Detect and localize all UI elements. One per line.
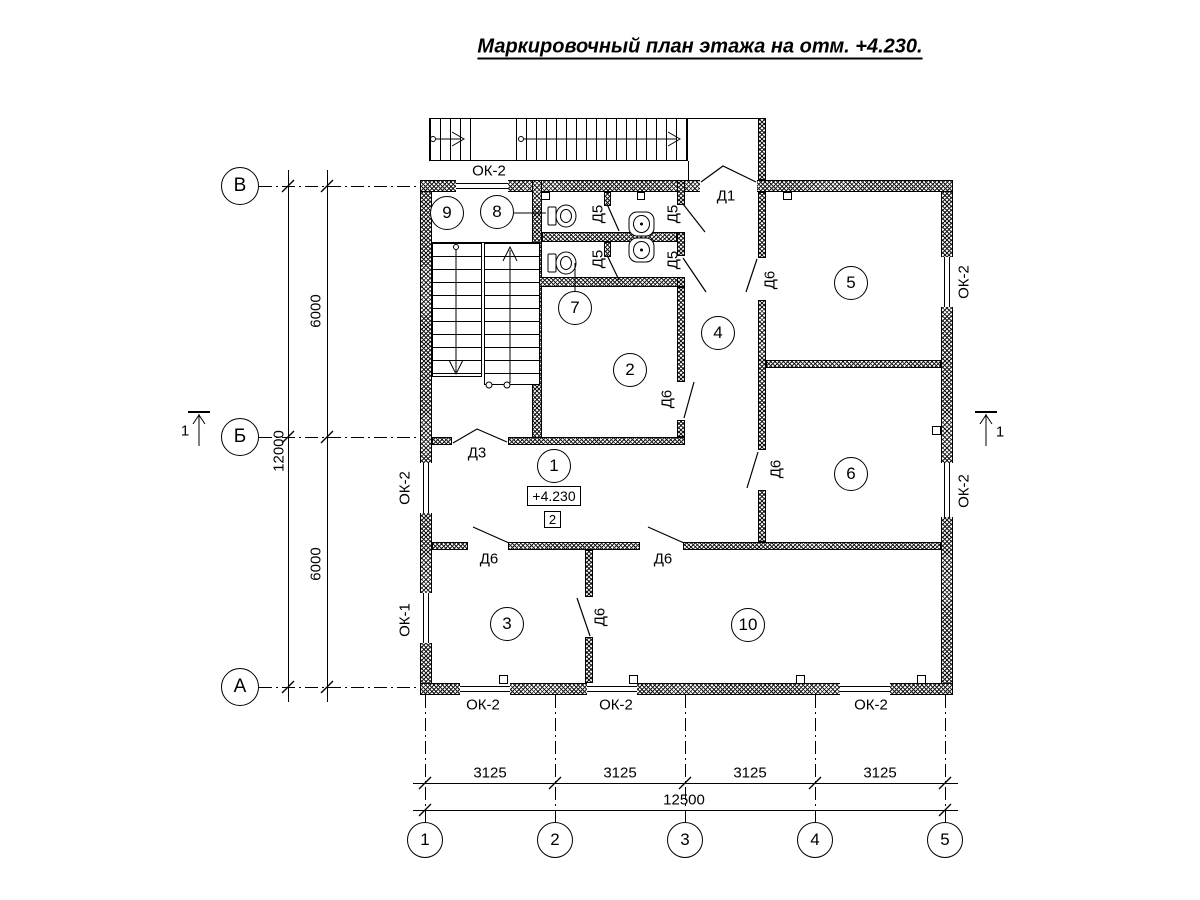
door-label-d6: Д6	[593, 608, 608, 627]
dim-bottom-segment-1: 3125	[473, 766, 506, 781]
axis-bubble-col-1: 1	[407, 822, 443, 858]
toilet-fixtures	[548, 205, 576, 274]
axis-bubble-col-4: 4	[797, 822, 833, 858]
room-bubble-5: 5	[834, 266, 868, 300]
door-label-d5: Д5	[591, 250, 606, 269]
axis-bubble-col-3: 3	[667, 822, 703, 858]
door-label-d6: Д6	[654, 552, 673, 567]
window-label-ok2: ОК-2	[957, 265, 972, 299]
zone-mark: 2	[544, 511, 561, 528]
axis-label: 3	[680, 830, 689, 850]
axis-label: А	[234, 676, 247, 698]
dim-left-total: 12000	[272, 430, 287, 472]
room-bubble-6: 6	[834, 457, 868, 491]
room-bubble-3: 3	[490, 607, 524, 641]
dim-bottom-segment-2: 3125	[603, 766, 636, 781]
window-label-ok2: ОК-2	[466, 698, 500, 713]
room-bubble-9: 9	[430, 196, 464, 230]
door-label-d5: Д5	[666, 251, 681, 270]
room-number: 2	[625, 360, 634, 380]
room-number: 9	[442, 203, 451, 223]
dim-bottom-segment-3: 3125	[733, 766, 766, 781]
sink-fixtures	[629, 212, 654, 262]
stair-newel-posts	[486, 382, 510, 388]
dim-bottom-segment-4: 3125	[863, 766, 896, 781]
dim-bottom-total: 12500	[663, 793, 705, 808]
axis-label: Б	[234, 426, 246, 448]
dim-left-segment-1: 6000	[309, 294, 324, 327]
door-label-d5: Д5	[666, 205, 681, 224]
room-number: 10	[739, 615, 758, 635]
axis-label: 5	[940, 830, 949, 850]
room-bubble-7: 7	[558, 291, 592, 325]
elevation-value: +4.230	[532, 488, 575, 504]
axis-bubble-row-v: В	[221, 167, 259, 205]
window-label-ok2: ОК-2	[957, 474, 972, 508]
room-number: 6	[846, 464, 855, 484]
elevation-mark: +4.230	[527, 486, 581, 506]
door-label-d1: Д1	[717, 189, 736, 204]
room-bubble-4: 4	[701, 316, 735, 350]
room-number: 1	[549, 456, 558, 476]
axis-bubble-row-b: Б	[221, 418, 259, 456]
annotation-lines	[0, 0, 1200, 900]
window-label-ok2: ОК-2	[854, 698, 888, 713]
axis-label: 2	[550, 830, 559, 850]
room-bubble-10: 10	[731, 608, 765, 642]
axis-label: В	[234, 175, 247, 197]
section-cut-label-left: 1	[181, 424, 189, 439]
room-number: 8	[492, 202, 501, 222]
door-label-d6: Д6	[763, 271, 778, 290]
room-number: 4	[713, 323, 722, 343]
door-label-d6: Д6	[480, 552, 499, 567]
door-label-d3: Д3	[468, 446, 487, 461]
axis-label: 4	[810, 830, 819, 850]
room-number: 7	[570, 298, 579, 318]
door-label-d5: Д5	[591, 205, 606, 224]
section-cut-marks	[188, 412, 997, 446]
room-bubble-8: 8	[480, 195, 514, 229]
axis-bubble-col-5: 5	[927, 822, 963, 858]
room-bubble-1: 1	[537, 449, 571, 483]
door-swing-lines	[473, 204, 758, 636]
window-label-ok2: ОК-2	[472, 164, 506, 179]
axis-bubble-row-a: А	[221, 668, 259, 706]
dim-left-segment-2: 6000	[309, 547, 324, 580]
window-label-ok1: ОК-1	[398, 603, 413, 637]
axis-label: 1	[420, 830, 429, 850]
room-number: 5	[846, 273, 855, 293]
window-label-ok2: ОК-2	[398, 471, 413, 505]
window-label-ok2: ОК-2	[599, 698, 633, 713]
room-bubble-2: 2	[613, 353, 647, 387]
section-cut-label-right: 1	[996, 425, 1004, 440]
zone-value: 2	[549, 512, 556, 527]
floor-plan-drawing: Маркировочный план этажа на отм. +4.230.	[0, 0, 1200, 900]
axis-bubble-col-2: 2	[537, 822, 573, 858]
door-label-d6: Д6	[660, 390, 675, 409]
door-label-d6: Д6	[769, 460, 784, 479]
room-number: 3	[502, 614, 511, 634]
